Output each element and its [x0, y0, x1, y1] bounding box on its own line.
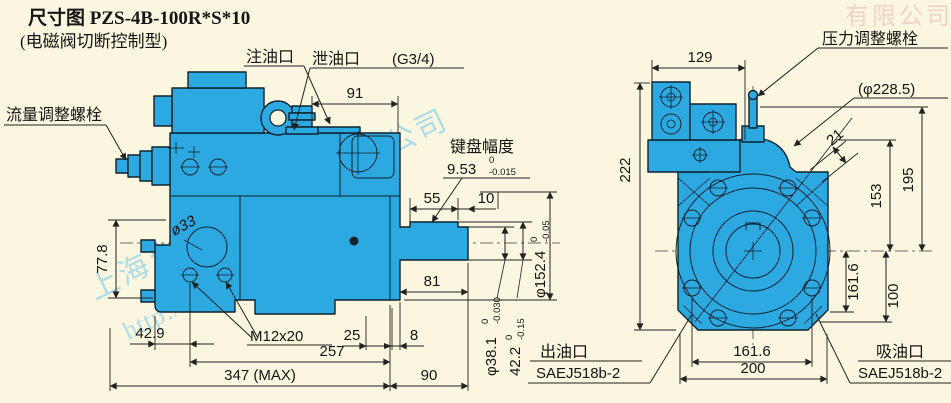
thread-spec-label: M12x20	[250, 328, 303, 345]
dim-77-8-value: 77.8	[94, 244, 111, 273]
flow-bolt-label: 流量调整螺栓	[6, 106, 102, 124]
dim-phi152-tol-u: 0	[529, 237, 540, 242]
dim-42-2: 42.2 0 -0.15	[504, 222, 527, 376]
dim-8-value: 8	[410, 327, 418, 344]
callout-flow-bolt: 流量调整螺栓	[4, 106, 126, 160]
dim-100-value: 100	[885, 283, 902, 308]
drawing-canvas: 上海台拓液压机械有限公司 http://www.ttyytw.com 有限公司 …	[0, 0, 951, 403]
plug-dot	[350, 237, 359, 246]
dim-153-value: 153	[868, 183, 885, 208]
oil-filler	[286, 106, 360, 134]
fill-port-label: 注油口	[246, 48, 294, 66]
pump-dimension-drawing: 上海台拓液压机械有限公司 http://www.ttyytw.com 有限公司 …	[0, 0, 951, 403]
dim-153: 153	[836, 140, 896, 251]
dim-81-value: 81	[424, 273, 441, 290]
dim-195-value: 195	[900, 167, 917, 192]
side-view: 流量调整螺栓 注油口 泄油口 (G3/4) 键盘幅度 9.53 0 -0.015…	[4, 48, 560, 391]
dim-90: 90	[390, 367, 468, 386]
valve-cap	[188, 72, 246, 88]
lifting-eye-hole	[270, 110, 286, 126]
flow-adjust-bolt	[116, 147, 170, 185]
valve-side-block	[154, 96, 172, 126]
dim-10-value: 10	[478, 190, 495, 207]
dim-42-2-tol-l: -0.15	[516, 318, 527, 340]
keyway-label: 键盘幅度	[450, 137, 514, 156]
dim-phi38-tol-l: -0.030	[492, 297, 503, 324]
dim-91: 91	[312, 85, 398, 133]
dim-25-value: 25	[344, 327, 361, 344]
keyway-tol-upper: 0	[489, 155, 494, 166]
front-view: 压力调整螺栓 (φ228.5) 出油口 SAEJ518b-2 吸油口 SAEJ5…	[528, 30, 951, 384]
pressure-screw-tip	[749, 91, 758, 100]
dim-42-2-value: 42.2	[507, 347, 524, 376]
dim-200-value: 200	[740, 360, 765, 377]
dim-phi38-tol-u: 0	[480, 319, 491, 324]
dim-25-arrow	[384, 343, 392, 349]
foot-stub	[141, 240, 155, 252]
dim-90-value: 90	[421, 367, 438, 384]
phi228-label: (φ228.5)	[858, 81, 915, 98]
drain-thread-label: (G3/4)	[392, 51, 435, 68]
dim-42-9-value: 42.9	[135, 325, 164, 342]
title-block: 尺寸图 PZS-4B-100R*S*10 (电磁阀切断控制型)	[20, 6, 250, 51]
suction-label: 吸油口	[876, 343, 924, 361]
dim-161-6-v-value: 161.6	[845, 263, 862, 301]
suction-std: SAEJ518b-2	[858, 365, 942, 382]
drawing-subtitle: (电磁阀切断控制型)	[20, 32, 167, 51]
dim-222-value: 222	[617, 157, 634, 182]
callout-outlet: 出油口 SAEJ518b-2	[528, 314, 692, 383]
keyway-value: 9.53	[447, 161, 476, 178]
pressure-bolt-label: 压力调整螺栓	[822, 30, 918, 48]
outlet-label: 出油口	[540, 343, 588, 361]
keyway-tol-lower: -0.015	[489, 167, 516, 178]
drain-port-label: 泄油口	[312, 50, 360, 68]
outlet-std: SAEJ518b-2	[536, 365, 620, 382]
dim-129-value: 129	[687, 49, 712, 66]
dim-257-value: 257	[319, 343, 344, 360]
dim-91-value: 91	[347, 85, 364, 102]
dim-161-6-v: 161.6	[830, 251, 862, 312]
dim-phi38-value: φ38.1	[483, 337, 500, 376]
dim-347-value: 347 (MAX)	[224, 367, 296, 384]
foot-stub-lower	[141, 290, 155, 302]
dim-42-2-tol-u: 0	[504, 335, 515, 340]
solenoid-valve-block	[172, 88, 264, 133]
drawing-title: 尺寸图 PZS-4B-100R*S*10	[28, 6, 250, 29]
watermark-corner: 有限公司	[845, 3, 951, 30]
dim-161-6-h-value: 161.6	[733, 343, 771, 360]
dim-10: 10	[458, 190, 498, 209]
dim-phi152-tol-l: -0.05	[541, 220, 552, 242]
dim-phi152-value: φ152.4	[532, 251, 549, 298]
callout-pressure-bolt: 压力调整螺栓	[758, 30, 948, 96]
dim-25-8: 25 8	[342, 302, 424, 350]
callout-suction: 吸油口 SAEJ518b-2	[816, 314, 951, 383]
pump-body-side	[155, 133, 468, 314]
callout-phi228: (φ228.5)	[794, 81, 948, 146]
dim-55-value: 55	[424, 190, 441, 207]
